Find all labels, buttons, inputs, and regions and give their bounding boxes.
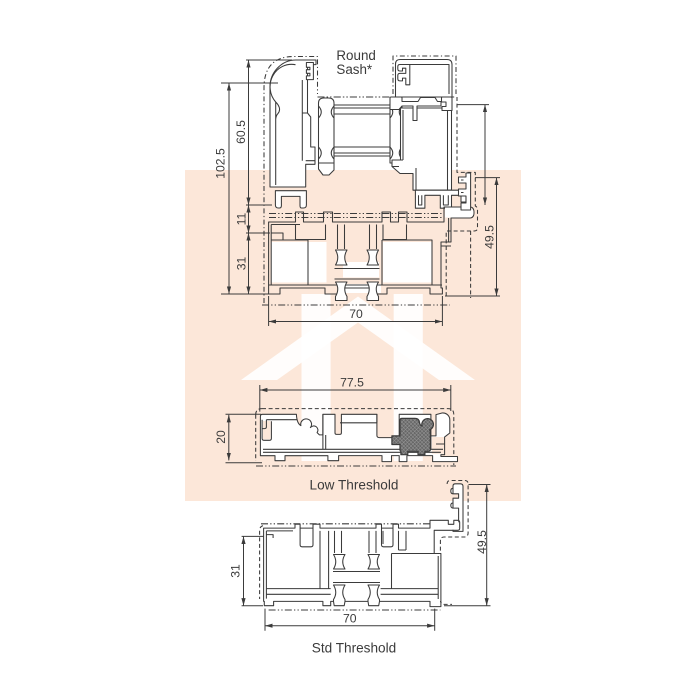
- svg-text:49.5: 49.5: [475, 530, 489, 554]
- svg-text:102.5: 102.5: [214, 148, 228, 179]
- svg-text:70: 70: [343, 612, 357, 626]
- svg-text:31: 31: [234, 257, 248, 271]
- svg-text:77.5: 77.5: [340, 376, 364, 390]
- svg-text:31: 31: [229, 564, 243, 578]
- svg-text:Sash*: Sash*: [336, 62, 372, 77]
- svg-text:Low Threshold: Low Threshold: [310, 477, 399, 492]
- svg-text:49.5: 49.5: [483, 225, 497, 249]
- svg-text:70: 70: [349, 307, 363, 321]
- svg-text:11: 11: [234, 212, 248, 225]
- svg-text:Std Threshold: Std Threshold: [312, 641, 396, 656]
- svg-text:60.5: 60.5: [234, 120, 248, 144]
- svg-text:Round: Round: [336, 48, 375, 63]
- svg-text:20: 20: [214, 430, 228, 444]
